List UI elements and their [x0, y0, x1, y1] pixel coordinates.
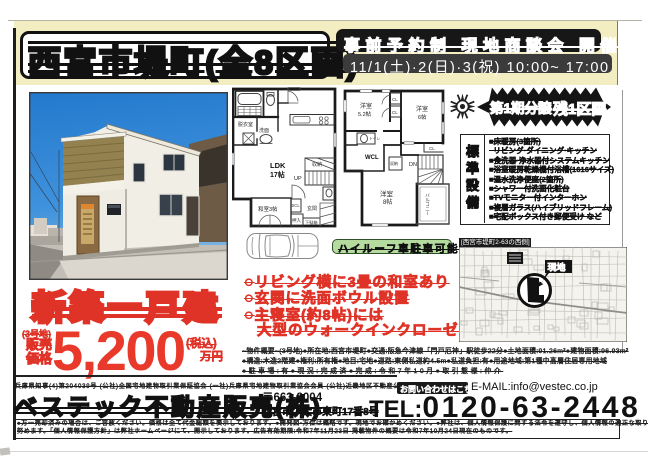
svg-text:第1期分譲: 第1期分譲 [490, 100, 552, 116]
svg-text:和室3帖: 和室3帖 [258, 205, 278, 213]
svg-text:CL: CL [392, 110, 398, 115]
svg-text:洋室: 洋室 [380, 189, 394, 198]
svg-text:17帖: 17帖 [270, 170, 285, 179]
svg-text:WCL: WCL [365, 155, 379, 161]
svg-text:トイレ: トイレ [369, 136, 381, 141]
svg-text:6帖: 6帖 [418, 113, 427, 121]
svg-text:洗面: 洗面 [259, 127, 269, 134]
svg-text:残1区画: 残1区画 [552, 100, 606, 118]
svg-text:玄関: 玄関 [307, 205, 317, 212]
svg-text:8帖: 8帖 [383, 198, 392, 206]
svg-text:DN: DN [409, 162, 417, 168]
svg-text:収納: 収納 [312, 161, 322, 168]
svg-text:収納: 収納 [390, 160, 398, 166]
svg-text:LDK: LDK [270, 161, 286, 170]
svg-text:現地: 現地 [548, 262, 566, 273]
svg-text:SCL: SCL [292, 203, 301, 208]
svg-text:洋室: 洋室 [416, 105, 428, 113]
svg-text:下駄箱: 下駄箱 [305, 219, 318, 226]
svg-text:洋室: 洋室 [360, 102, 372, 110]
svg-text:押入: 押入 [292, 217, 301, 224]
svg-text:脱衣室: 脱衣室 [238, 121, 253, 128]
svg-text:バルコニー: バルコニー [425, 193, 431, 216]
svg-text:UP: UP [294, 176, 302, 182]
svg-text:CL: CL [429, 146, 435, 151]
svg-text:CL: CL [392, 97, 398, 102]
svg-text:5.2帖: 5.2帖 [358, 110, 372, 118]
